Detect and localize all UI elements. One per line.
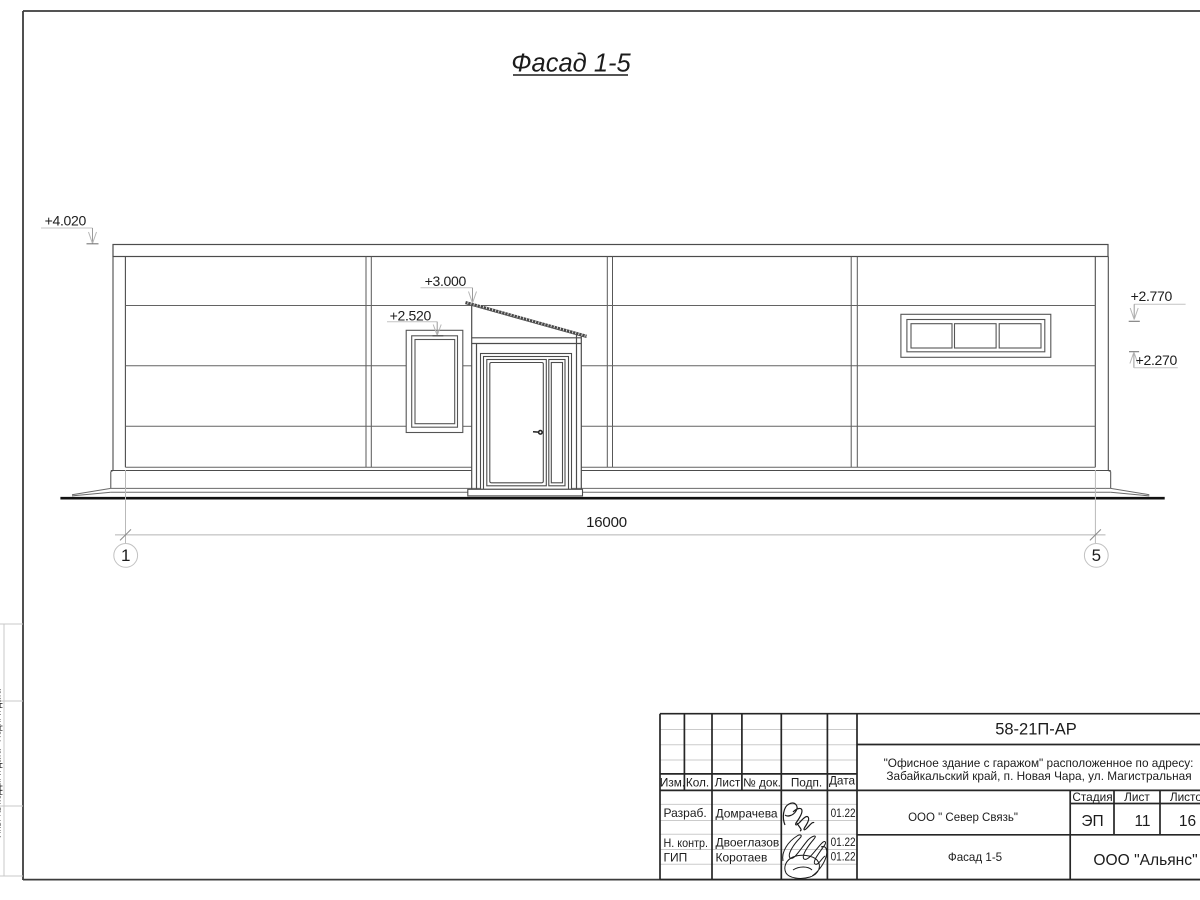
- svg-text:Разраб.: Разраб.: [664, 806, 707, 820]
- svg-text:Фасад 1-5: Фасад 1-5: [511, 50, 631, 78]
- svg-text:+2.770: +2.770: [1131, 288, 1173, 304]
- svg-text:ООО " Север Связь": ООО " Север Связь": [908, 812, 1018, 824]
- svg-text:№ док.: № док.: [743, 776, 781, 790]
- svg-text:01.22: 01.22: [831, 808, 856, 820]
- svg-text:Дата: Дата: [829, 774, 856, 788]
- svg-text:ЭП: ЭП: [1081, 813, 1103, 830]
- svg-text:Лист: Лист: [715, 776, 741, 790]
- svg-text:Подп.: Подп.: [791, 776, 822, 790]
- svg-text:Изм.: Изм.: [660, 776, 685, 790]
- svg-text:Листов: Листов: [1170, 790, 1200, 804]
- svg-text:11: 11: [1134, 813, 1150, 830]
- svg-text:1: 1: [121, 546, 130, 565]
- svg-text:+2.520: +2.520: [390, 307, 432, 323]
- svg-text:ГИП: ГИП: [664, 850, 688, 864]
- svg-text:"Офисное здание с гаражом" рас: "Офисное здание с гаражом" расположенное…: [884, 756, 1194, 770]
- svg-text:Фасад 1-5: Фасад 1-5: [948, 851, 1002, 864]
- svg-text:+2.270: +2.270: [1136, 352, 1178, 368]
- svg-text:+3.000: +3.000: [425, 273, 467, 289]
- svg-text:01.22: 01.22: [831, 837, 856, 849]
- svg-text:ООО "Альянс": ООО "Альянс": [1093, 852, 1197, 869]
- svg-text:Стадия: Стадия: [1072, 790, 1112, 804]
- svg-text:Двоеглазов: Двоеглазов: [716, 835, 780, 849]
- svg-text:Н. контр.: Н. контр.: [664, 836, 709, 850]
- svg-text:Забайкальский край, п. Новая Ч: Забайкальский край, п. Новая Чара, ул. М…: [886, 769, 1191, 783]
- svg-text:Домрачева: Домрачева: [716, 806, 778, 820]
- svg-text:Коротаев: Коротаев: [716, 850, 768, 864]
- svg-text:Подп. и дата: Подп. и дата: [0, 689, 3, 742]
- svg-text:01.22: 01.22: [831, 852, 856, 864]
- svg-text:5: 5: [1092, 546, 1101, 565]
- svg-text:16: 16: [1179, 813, 1196, 830]
- svg-text:+4.020: +4.020: [45, 213, 87, 229]
- svg-text:16000: 16000: [586, 514, 627, 531]
- svg-text:Лист: Лист: [1124, 790, 1150, 804]
- svg-text:58-21П-АР: 58-21П-АР: [995, 721, 1077, 739]
- svg-text:Кол.: Кол.: [686, 776, 709, 790]
- svg-text:Инв. № подл.: Инв. № подл.: [0, 782, 3, 838]
